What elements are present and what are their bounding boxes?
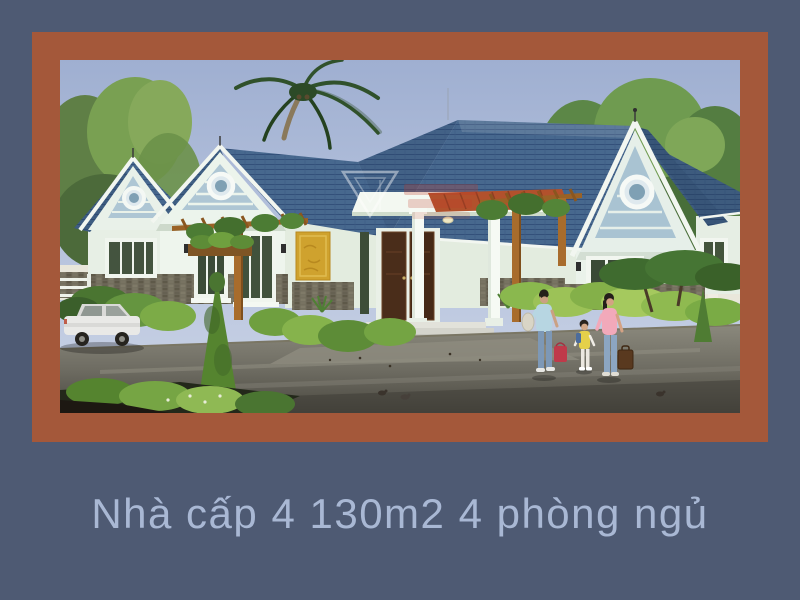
accent-panel [296,232,330,280]
house-photo [60,60,740,413]
photo-frame [32,32,768,442]
caption-text: Nhà cấp 4 130m2 4 phòng ngủ [0,487,800,542]
house-rendering [60,60,740,413]
slide-background: Nhà cấp 4 130m2 4 phòng ngủ [0,0,800,600]
